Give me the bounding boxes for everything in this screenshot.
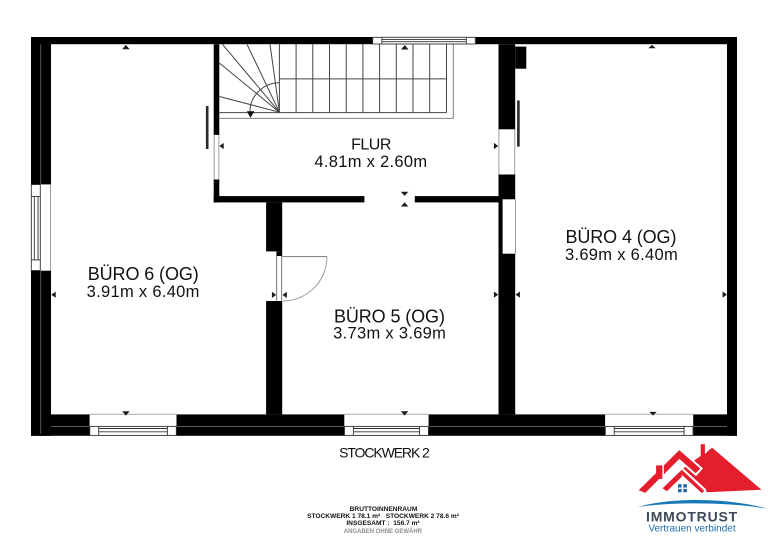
svg-text:BRUTTOINNENRAUM: BRUTTOINNENRAUM — [350, 506, 418, 513]
svg-text:3.91m x 6.40m: 3.91m x 6.40m — [87, 283, 200, 301]
svg-text:3.69m x 6.40m: 3.69m x 6.40m — [565, 246, 678, 264]
svg-text:ANGABEN OHNE GEWÄHR: ANGABEN OHNE GEWÄHR — [344, 528, 423, 535]
svg-text:BÜRO 6 (OG): BÜRO 6 (OG) — [88, 264, 199, 284]
svg-text:3.73m x 3.69m: 3.73m x 3.69m — [333, 325, 446, 343]
svg-text:BÜRO 5 (OG): BÜRO 5 (OG) — [334, 306, 445, 326]
svg-text:Vertrauen verbindet: Vertrauen verbindet — [648, 524, 736, 535]
svg-text:IMMOTRUST: IMMOTRUST — [646, 509, 738, 525]
svg-text:INSGESAMT : 156.7 m²: INSGESAMT : 156.7 m² — [346, 520, 420, 527]
svg-text:4.81m x 2.60m: 4.81m x 2.60m — [314, 153, 427, 171]
svg-text:BÜRO 4 (OG): BÜRO 4 (OG) — [565, 227, 676, 247]
svg-text:FLUR: FLUR — [351, 137, 391, 154]
svg-text:STOCKWERK 2: STOCKWERK 2 — [339, 445, 430, 461]
